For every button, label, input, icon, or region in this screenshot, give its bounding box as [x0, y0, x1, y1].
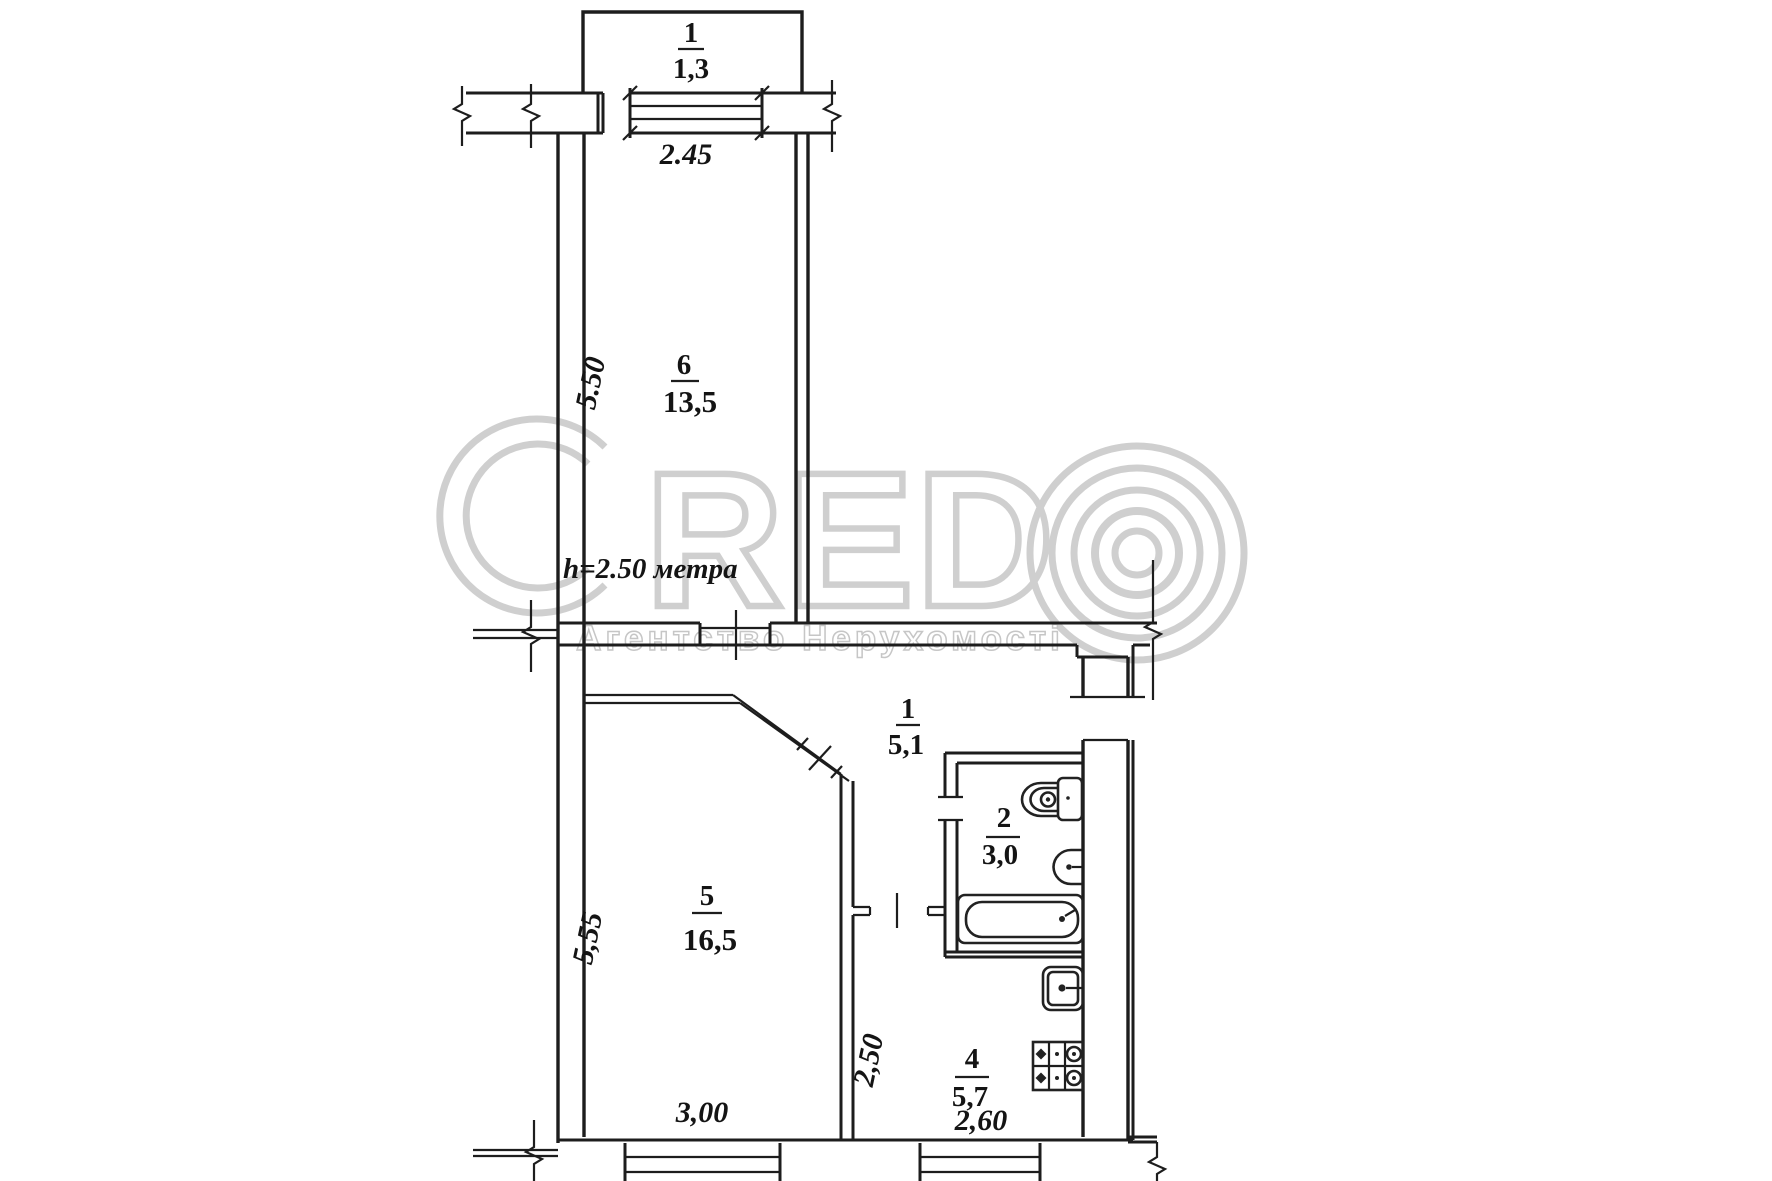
kitchen-window-icon: [920, 1143, 1040, 1181]
living-partition: [584, 695, 853, 1140]
wall-break-icon: [454, 86, 470, 146]
living-door-icon: [797, 738, 842, 778]
watermark-subtitle: Агентство Нерухомості: [576, 619, 1064, 658]
dim-living-width: 3,00: [675, 1096, 729, 1129]
bathroom-door-icon: [938, 797, 963, 820]
bedroom-number: 6: [677, 349, 692, 381]
balcony-number: 1: [684, 17, 699, 49]
bottom-wall: [473, 1120, 1133, 1181]
hall-number: 1: [901, 693, 916, 725]
bathroom-number: 2: [997, 802, 1012, 834]
bathroom-area: 3,0: [982, 839, 1018, 871]
kitchen-sink-icon: [1043, 967, 1083, 1010]
stove-icon: [1033, 1042, 1083, 1090]
living-window-icon: [625, 1143, 780, 1181]
entrance-door-icon: [1070, 697, 1145, 740]
watermark-letters: RED: [645, 432, 1056, 647]
washbasin-icon: [1054, 850, 1083, 884]
living-area: 16,5: [683, 922, 737, 957]
kitchen-door-wall: [853, 893, 945, 928]
wall-break-icon: [824, 80, 840, 152]
living-number: 5: [700, 880, 715, 912]
toilet-icon: [1022, 778, 1082, 820]
balcony-area: 1,3: [673, 53, 709, 85]
bedroom-area: 13,5: [663, 384, 717, 419]
wall-break-icon: [1149, 1142, 1165, 1181]
hall-area: 5,1: [888, 729, 924, 761]
dim-bedroom-depth: 5.50: [569, 354, 612, 412]
bedroom-window-icon: [630, 88, 762, 138]
dim-kitchen-width: 2,60: [954, 1104, 1008, 1137]
bathtub-icon: [958, 895, 1083, 943]
top-wall: [454, 80, 840, 152]
floorplan-page: RED Агентство Нерухомості: [0, 0, 1772, 1181]
kitchen-number: 4: [965, 1043, 980, 1075]
dim-living-depth: 5,55: [566, 909, 609, 967]
wall-break-icon: [1145, 560, 1161, 700]
dim-balcony-window: 2.45: [659, 138, 713, 171]
ceiling-height-note: h=2.50 метра: [563, 553, 738, 585]
floorplan-drawing: RED Агентство Нерухомості: [0, 0, 1772, 1181]
